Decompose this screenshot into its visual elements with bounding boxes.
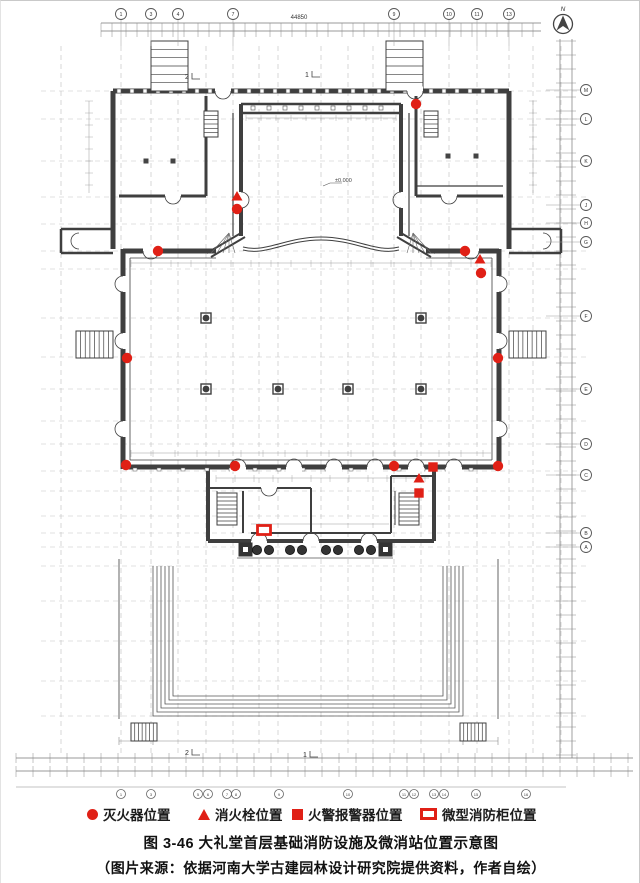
legend-item-cabinet: 微型消防柜位置 — [420, 804, 537, 824]
svg-text:G: G — [584, 240, 588, 246]
svg-text:12: 12 — [412, 792, 417, 797]
svg-text:L: L — [585, 117, 588, 123]
level-marker: ±0.000 — [323, 178, 352, 186]
svg-text:7: 7 — [232, 12, 235, 18]
figure-source: （图片来源：依据河南大学古建园林设计研究院提供资料，作者自绘） — [1, 858, 640, 878]
extinguisher-marker — [121, 460, 131, 470]
grid-bubbles-layer: 13479101113MLKJHGFEDCBA13567891011121314… — [116, 9, 592, 799]
floor-plan-drawing: 44850 N ±0.000 2121 13479101113MLKJHGFED… — [1, 1, 640, 801]
extinguisher-marker — [122, 353, 132, 363]
extinguisher-marker — [493, 353, 503, 363]
level-label: ±0.000 — [335, 178, 352, 184]
dimension-layer — [16, 23, 633, 787]
svg-text:H: H — [584, 221, 588, 227]
svg-text:14: 14 — [442, 792, 447, 797]
figure-caption: 图 3-46 大礼堂首层基础消防设施及微消站位置示意图 — [1, 832, 640, 853]
legend-item-alarm: 火警报警器位置 — [292, 804, 403, 824]
overall-dimension-label: 44850 — [291, 15, 308, 21]
svg-text:C: C — [584, 473, 588, 479]
svg-text:9: 9 — [393, 12, 396, 18]
extinguisher-marker — [476, 268, 486, 278]
alarm-marker — [414, 488, 423, 497]
svg-text:13: 13 — [506, 12, 512, 18]
extinguisher-marker — [232, 204, 242, 214]
svg-text:16: 16 — [524, 792, 529, 797]
section-mark-label: 1 — [303, 752, 307, 759]
svg-text:D: D — [584, 442, 588, 448]
legend-label: 灭火器位置 — [103, 804, 171, 824]
svg-text:1: 1 — [120, 12, 123, 18]
north-arrow: N — [554, 6, 573, 34]
extinguisher-marker — [389, 461, 399, 471]
extinguisher-marker — [153, 246, 163, 256]
svg-text:15: 15 — [474, 792, 479, 797]
extinguisher-marker — [230, 461, 240, 471]
alarm-marker — [428, 462, 437, 471]
legend-label: 消火栓位置 — [215, 804, 283, 824]
svg-text:M: M — [584, 88, 588, 94]
svg-text:10: 10 — [346, 792, 351, 797]
legend-label: 微型消防柜位置 — [442, 804, 537, 824]
north-label: N — [561, 6, 566, 13]
section-mark-label: 2 — [185, 74, 189, 81]
svg-text:13: 13 — [432, 792, 437, 797]
alarm-symbol-icon — [292, 809, 303, 820]
extinguisher-symbol-icon — [87, 809, 98, 820]
extinguisher-marker — [460, 246, 470, 256]
svg-text:4: 4 — [177, 12, 180, 18]
legend-item-hydrant: 消火栓位置 — [198, 804, 283, 824]
extinguisher-marker — [411, 99, 421, 109]
section-mark-label: 1 — [305, 72, 309, 79]
extinguisher-marker — [493, 461, 503, 471]
scanned-drawing-page: { "colors": { "red": "#e02016", "line": … — [0, 0, 640, 883]
cabinet-marker — [258, 526, 271, 535]
legend-item-extinguisher: 灭火器位置 — [87, 804, 171, 824]
cabinet-symbol-icon — [420, 808, 437, 820]
legend: 灭火器位置 消火栓位置 火警报警器位置 微型消防柜位置 — [1, 804, 640, 826]
svg-text:3: 3 — [150, 12, 153, 18]
walls-layer — [61, 41, 561, 741]
svg-text:F: F — [584, 314, 587, 320]
hydrant-symbol-icon — [198, 809, 210, 820]
svg-text:10: 10 — [446, 12, 452, 18]
svg-text:11: 11 — [474, 12, 479, 18]
legend-label: 火警报警器位置 — [308, 804, 403, 824]
section-mark-label: 2 — [185, 750, 189, 757]
